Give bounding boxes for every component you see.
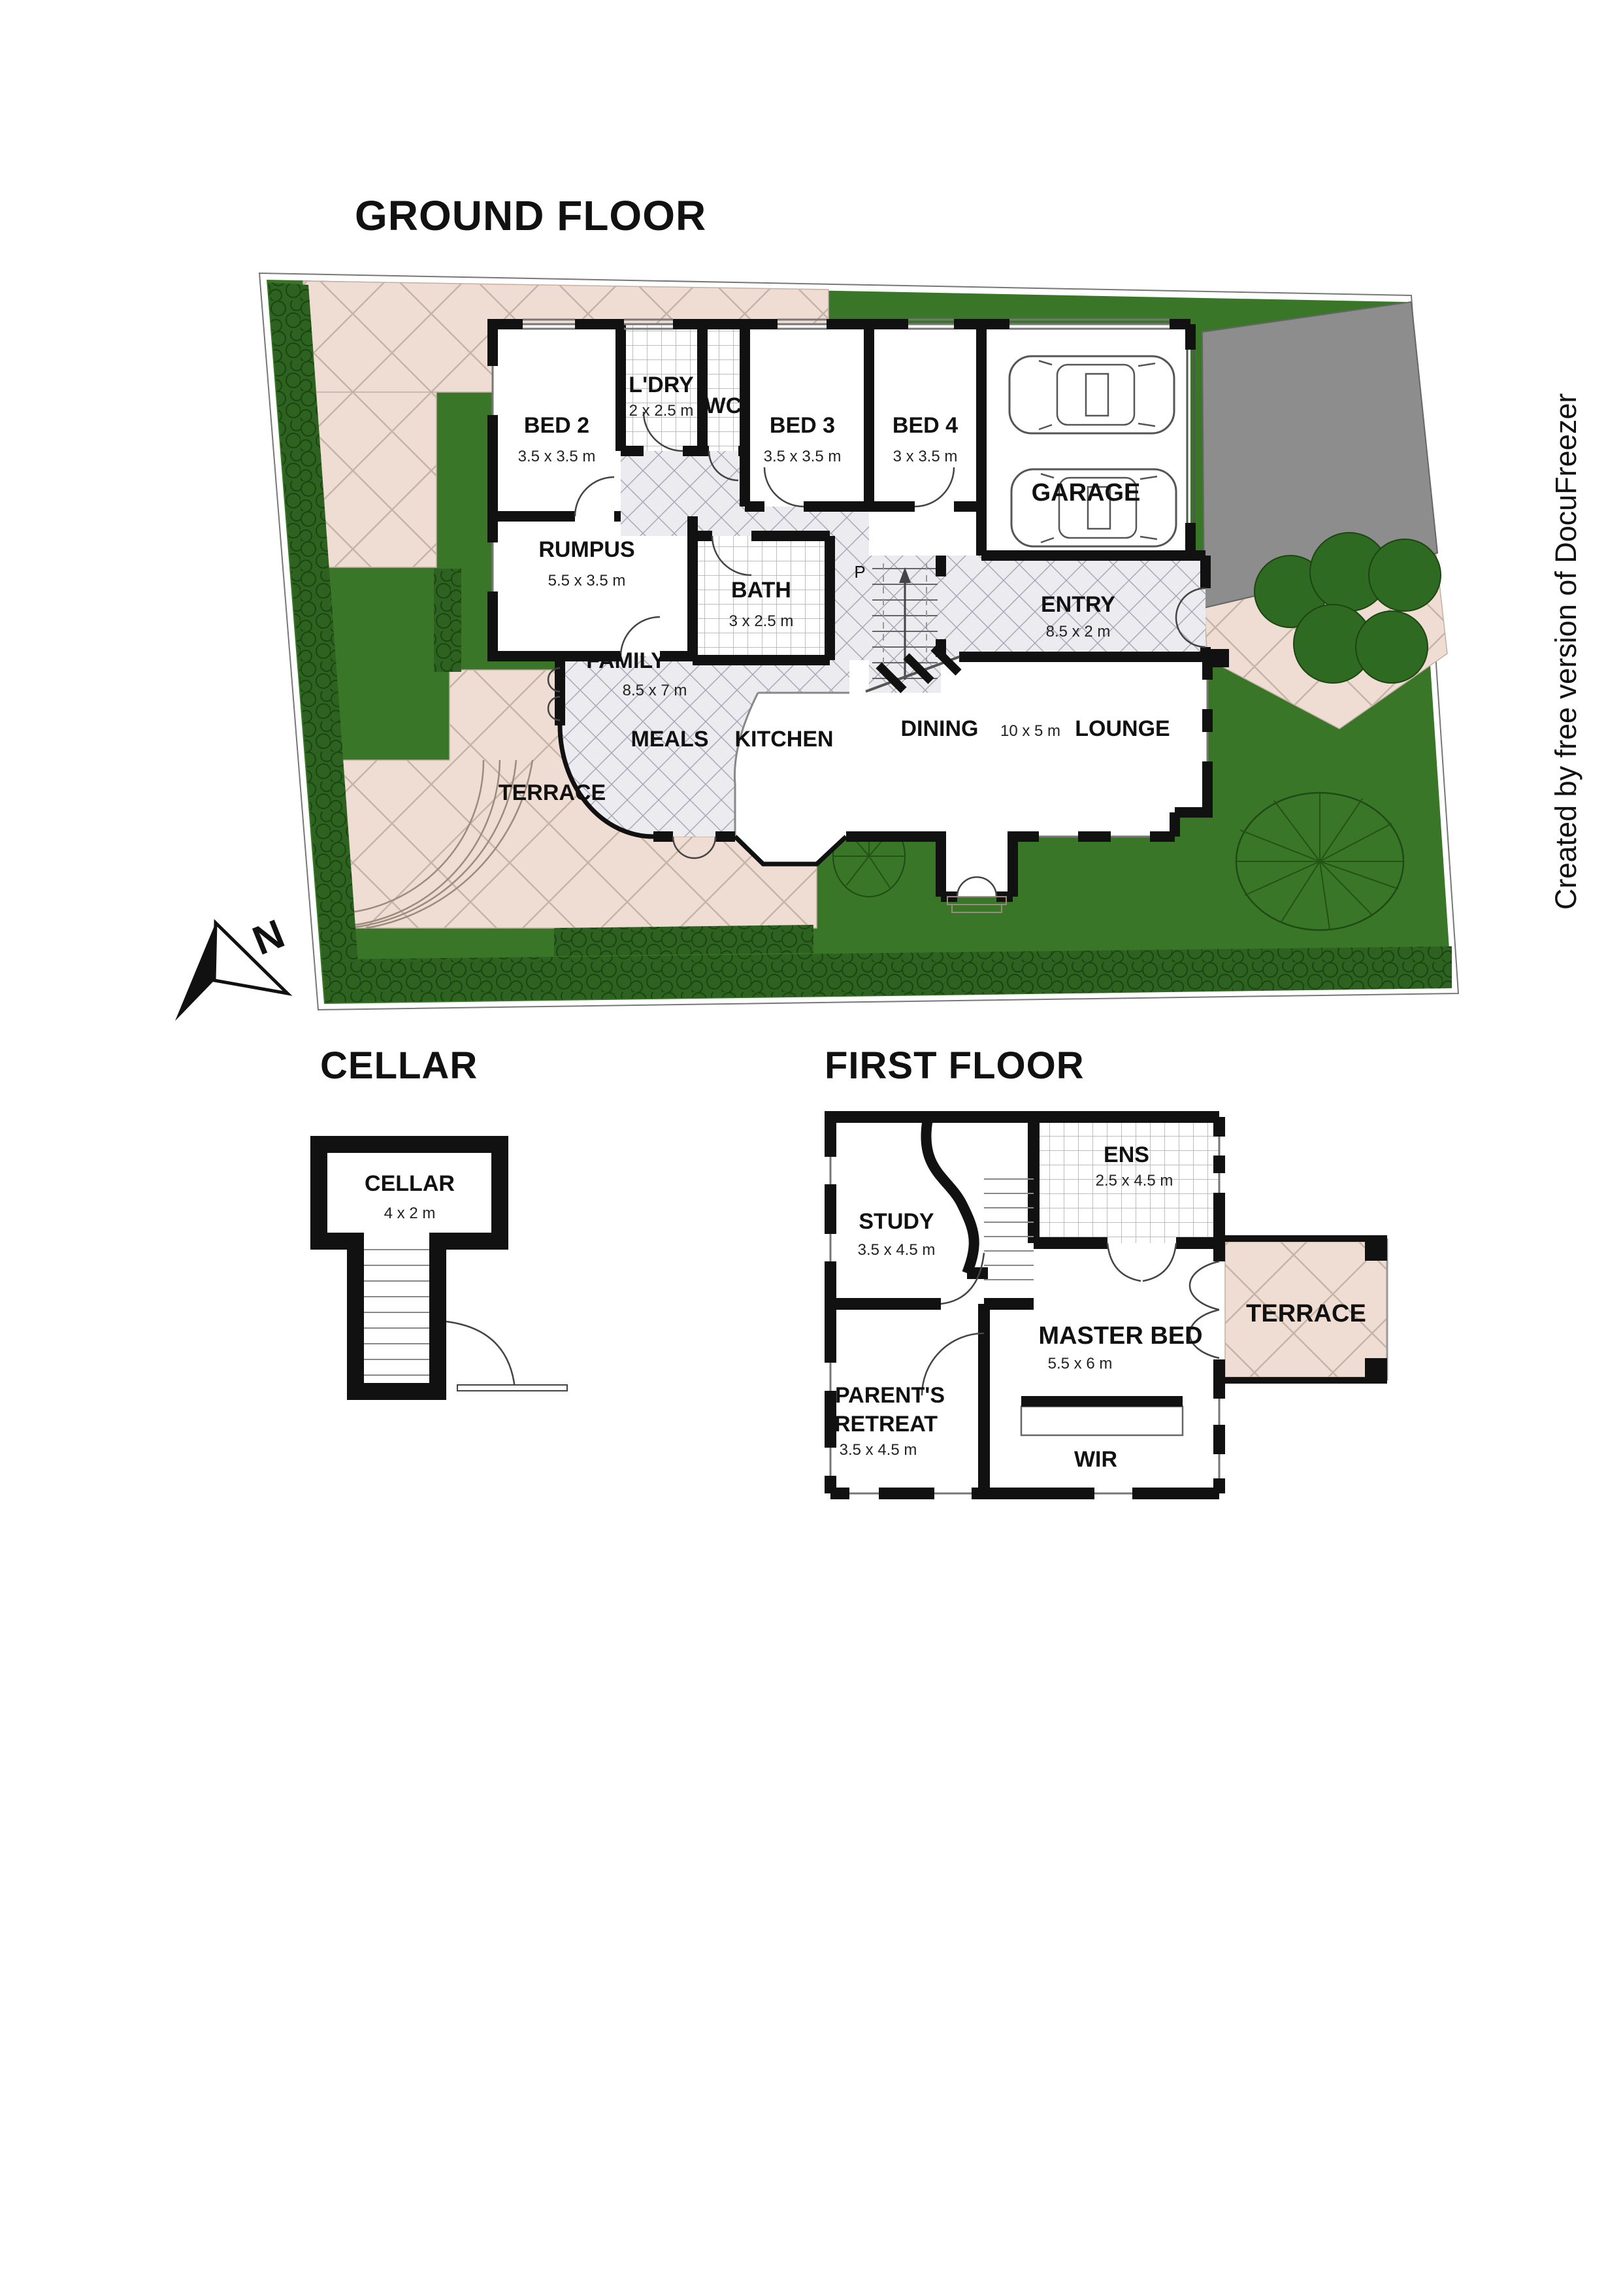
room-label-bath: BATH: [731, 578, 791, 603]
first-floor-plan: STUDY 3.5 x 4.5 m ENS 2.5 x 4.5 m MASTER…: [825, 1117, 1387, 1493]
room-dims-bed4: 3 x 3.5 m: [893, 448, 958, 465]
room-label-ldry: L'DRY: [629, 373, 694, 397]
room-dims-dining: 10 x 5 m: [1000, 722, 1060, 740]
room-label-terrace: TERRACE: [499, 780, 606, 805]
room-label-wir: WIR: [1074, 1447, 1117, 1472]
room-label-lounge: LOUNGE: [1075, 716, 1170, 741]
room-dims-family: 8.5 x 7 m: [623, 682, 687, 699]
room-label-bed2: BED 2: [524, 413, 589, 438]
room-label-ff-terrace: TERRACE: [1246, 1300, 1366, 1327]
room-label-entry: ENTRY: [1041, 592, 1115, 617]
north-label: N: [246, 911, 290, 964]
room-label-bed4: BED 4: [893, 413, 958, 438]
room-dims-bath: 3 x 2.5 m: [729, 612, 794, 630]
cellar-door: [446, 1322, 515, 1388]
room-label-wc: WC: [705, 393, 742, 418]
room-label-bed3: BED 3: [770, 413, 835, 438]
room-label-retreat-1: PARENT'S: [835, 1383, 945, 1408]
room-dims-retreat: 3.5 x 4.5 m: [840, 1441, 917, 1459]
room-dims-entry: 8.5 x 2 m: [1046, 623, 1111, 641]
hedge-left-column: [434, 569, 461, 672]
cellar-plan: CELLAR 4 x 2 m: [310, 1136, 567, 1400]
room-label-study: STUDY: [859, 1209, 934, 1234]
cellar-title: CELLAR: [320, 1044, 478, 1087]
room-label-retreat-2: RETREAT: [834, 1412, 938, 1437]
room-dims-bed3: 3.5 x 3.5 m: [764, 448, 842, 465]
room-dims-cellar: 4 x 2 m: [384, 1205, 436, 1222]
car-icon: [1009, 356, 1174, 433]
room-dims-bed2: 3.5 x 3.5 m: [518, 448, 596, 465]
watermark-text: Created by free version of DocuFreezer: [1549, 393, 1582, 910]
room-label-garage: GARAGE: [1032, 479, 1141, 507]
room-label-cellar: CELLAR: [365, 1171, 455, 1196]
floorplan-canvas: GROUND FLOOR CELLAR FIRST FLOOR Created …: [0, 0, 1623, 2296]
room-label-ens: ENS: [1104, 1142, 1149, 1167]
room-label-family: FAMILY: [586, 648, 666, 673]
paving-left-band: [308, 392, 436, 567]
room-dims-ldry: 2 x 2.5 m: [629, 402, 694, 420]
stair-label-p: P: [854, 562, 865, 582]
room-dims-ens: 2.5 x 4.5 m: [1096, 1172, 1173, 1190]
north-arrow-icon: N: [175, 911, 291, 1021]
wardrobe: [1021, 1396, 1183, 1435]
room-label-master: MASTER BED: [1038, 1322, 1202, 1350]
room-label-dining: DINING: [901, 716, 979, 741]
room-label-rumpus: RUMPUS: [538, 537, 634, 562]
room-label-meals: MEALS: [631, 727, 709, 752]
room-dims-study: 3.5 x 4.5 m: [858, 1241, 936, 1259]
room-dims-rumpus: 5.5 x 3.5 m: [548, 572, 626, 590]
porch-post: [1211, 649, 1229, 667]
room-dims-master: 5.5 x 6 m: [1048, 1355, 1113, 1373]
ground-floor-title: GROUND FLOOR: [355, 192, 706, 239]
tree-icon: [1236, 793, 1403, 930]
first-floor-title: FIRST FLOOR: [825, 1044, 1085, 1087]
room-label-kitchen: KITCHEN: [734, 727, 833, 752]
hedge-terrace-row: [554, 925, 813, 956]
